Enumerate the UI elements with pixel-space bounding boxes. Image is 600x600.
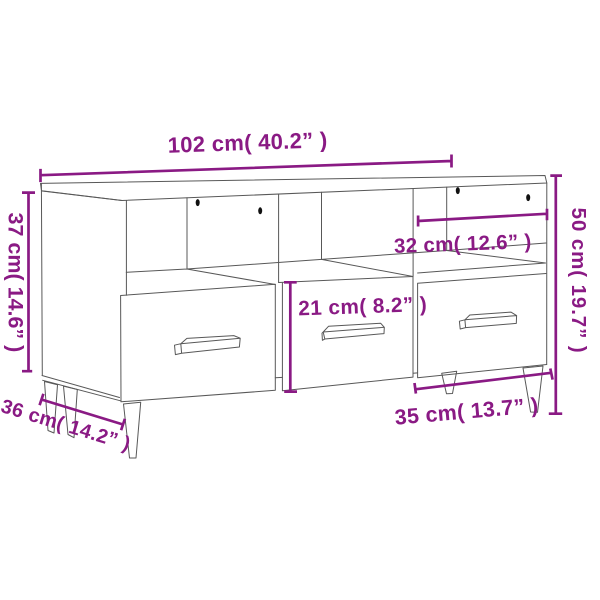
svg-text:102 cm( 40.2” ): 102 cm( 40.2” ) bbox=[167, 127, 328, 158]
svg-text:32 cm( 12.6” ): 32 cm( 12.6” ) bbox=[394, 230, 532, 258]
svg-text:35 cm( 13.7” ): 35 cm( 13.7” ) bbox=[394, 393, 540, 429]
svg-text:36 cm( 14.2” ): 36 cm( 14.2” ) bbox=[0, 395, 133, 455]
svg-text:37 cm( 14.6” ): 37 cm( 14.6” ) bbox=[4, 212, 28, 352]
svg-text:50 cm( 19.7” ): 50 cm( 19.7” ) bbox=[567, 208, 590, 354]
svg-text:21 cm( 8.2” ): 21 cm( 8.2” ) bbox=[298, 293, 428, 320]
